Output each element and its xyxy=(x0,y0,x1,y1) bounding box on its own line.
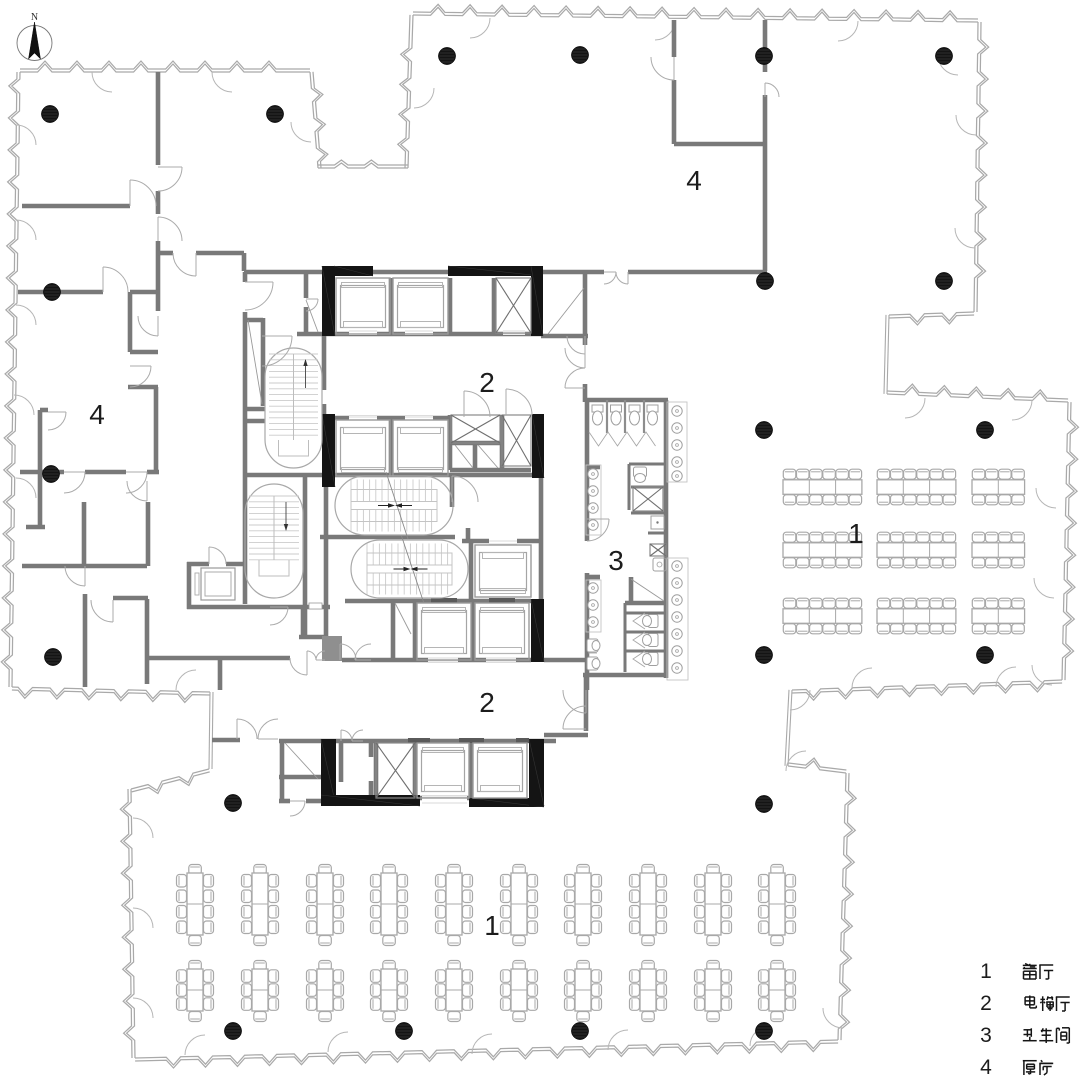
svg-text:N: N xyxy=(31,12,38,23)
svg-text:3: 3 xyxy=(980,1024,992,1047)
svg-text:2: 2 xyxy=(479,367,495,398)
svg-text:1: 1 xyxy=(980,960,992,983)
svg-text:1: 1 xyxy=(848,518,864,549)
svg-text:4: 4 xyxy=(686,165,702,196)
svg-text:2: 2 xyxy=(479,687,495,718)
svg-text:1: 1 xyxy=(484,910,500,941)
svg-text:4: 4 xyxy=(980,1056,992,1079)
svg-text:2: 2 xyxy=(980,992,992,1015)
svg-text:3: 3 xyxy=(608,545,624,576)
svg-text:4: 4 xyxy=(89,399,105,430)
